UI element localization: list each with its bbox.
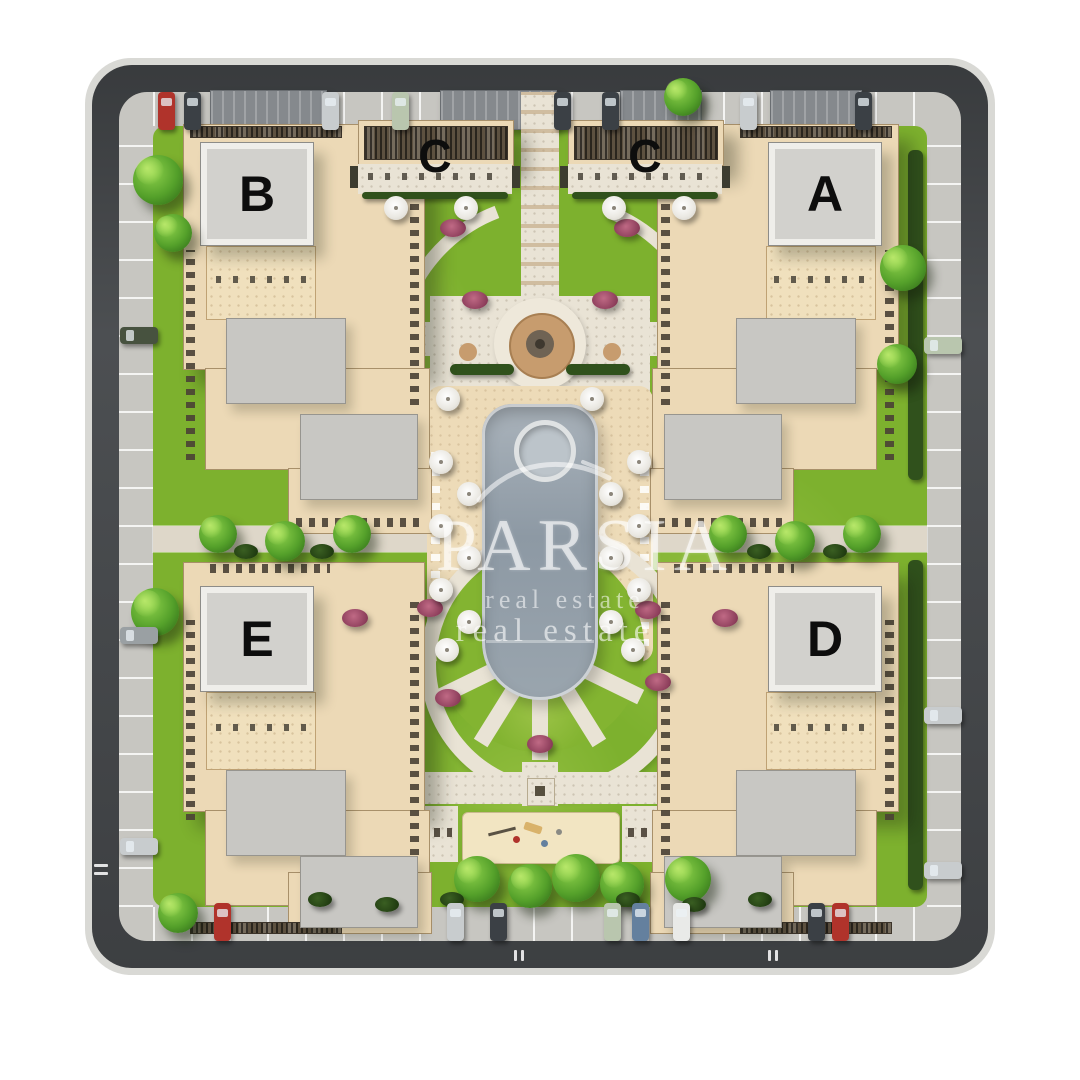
car-icon (447, 903, 464, 941)
umbrella-icon (429, 578, 453, 602)
flower-bush-icon (342, 609, 368, 627)
flower-bush-icon (462, 291, 488, 309)
flower-bush-icon (614, 219, 640, 237)
road-marking (514, 950, 517, 961)
bush-icon (823, 544, 847, 559)
building-e-terrace (206, 692, 316, 770)
car-icon (120, 327, 158, 344)
hedge-row (566, 364, 630, 375)
building-a-terrace-tables (774, 276, 864, 283)
car-icon (120, 627, 158, 644)
building-b-terrace-tables (216, 276, 306, 283)
umbrella-icon (457, 482, 481, 506)
building-e-balconies (186, 620, 195, 820)
car-icon (158, 92, 175, 130)
building-e-main-roof: E (200, 586, 314, 692)
building-d-main-roof: D (768, 586, 882, 692)
planter-box (350, 166, 358, 188)
car-icon (322, 92, 339, 130)
building-a-roof (664, 414, 782, 500)
car-icon (924, 337, 962, 354)
bush-icon (375, 897, 399, 912)
umbrella-icon (457, 546, 481, 570)
road-marking (94, 872, 108, 875)
site-plan-rendering: B A E (0, 0, 1080, 1080)
umbrella-icon (599, 482, 623, 506)
car-icon (832, 903, 849, 941)
umbrella-icon (627, 578, 651, 602)
umbrella-icon (435, 638, 459, 662)
playground (462, 812, 620, 864)
building-a-main-roof: A (768, 142, 882, 246)
building-a-terrace (766, 246, 876, 320)
car-icon (490, 903, 507, 941)
flower-bush-icon (527, 735, 553, 753)
umbrella-icon (429, 450, 453, 474)
bush-icon (308, 892, 332, 907)
building-d-balconies (674, 564, 794, 573)
playground-toy-gray (556, 829, 562, 835)
planter-circle-east (603, 343, 621, 361)
umbrella-icon (580, 387, 604, 411)
building-c-right-labelarea: C (568, 118, 722, 194)
building-b-terrace (206, 246, 316, 320)
road-marking (94, 864, 108, 867)
parking-stalls-left (119, 126, 153, 907)
tree-icon (333, 515, 371, 553)
tree-icon (552, 854, 600, 902)
building-b-main-roof: B (200, 142, 314, 246)
umbrella-icon (599, 610, 623, 634)
umbrella-icon (436, 387, 460, 411)
building-e-balconies (410, 600, 419, 855)
umbrella-icon (429, 514, 453, 538)
car-icon (602, 92, 619, 130)
bush-icon (748, 892, 772, 907)
road-marking (768, 950, 771, 961)
tree-icon (880, 245, 926, 291)
building-d-roof (736, 770, 856, 856)
tree-icon (133, 155, 183, 205)
tree-icon (665, 856, 711, 902)
car-icon (214, 903, 231, 941)
planter-circle-west (459, 343, 477, 361)
road-marking (521, 950, 524, 961)
car-icon (392, 92, 409, 130)
hedge-row (908, 150, 923, 480)
building-b-pergola (190, 126, 342, 138)
planter-box (722, 166, 730, 188)
spa-circle (514, 420, 576, 482)
fountain-jet (535, 339, 545, 349)
building-e-terrace-tables (216, 724, 306, 731)
car-icon (924, 707, 962, 724)
tree-icon (199, 515, 237, 553)
umbrella-icon (621, 638, 645, 662)
car-icon (120, 838, 158, 855)
flower-bush-icon (440, 219, 466, 237)
car-icon (554, 92, 571, 130)
umbrella-icon (602, 196, 626, 220)
flower-bush-icon (435, 689, 461, 707)
building-d-balconies (661, 600, 670, 855)
umbrella-icon (384, 196, 408, 220)
building-c-left-label[interactable]: C (418, 133, 451, 179)
umbrella-icon (454, 196, 478, 220)
building-a-label[interactable]: A (807, 169, 843, 219)
tree-icon (508, 864, 551, 907)
bush-icon (747, 544, 771, 559)
tree-icon (843, 515, 881, 553)
flower-bush-icon (645, 673, 671, 691)
building-d-balconies (885, 620, 894, 820)
building-c-left-labelarea: C (358, 118, 512, 194)
umbrella-icon (457, 610, 481, 634)
building-c-right-label[interactable]: C (628, 133, 661, 179)
building-a-roof (736, 318, 856, 404)
umbrella-icon (599, 546, 623, 570)
pool-lane-line (486, 640, 594, 643)
feature-square-center (535, 786, 545, 796)
flower-bush-icon (592, 291, 618, 309)
building-b-roof (226, 318, 346, 404)
car-icon (673, 903, 690, 941)
planter-box (512, 166, 520, 188)
umbrella-icon (627, 514, 651, 538)
umbrella-icon (627, 450, 651, 474)
building-b-label[interactable]: B (239, 169, 275, 219)
car-icon (808, 903, 825, 941)
tree-icon (154, 214, 192, 252)
car-icon (924, 862, 962, 879)
car-icon (740, 92, 757, 130)
bush-icon (310, 544, 334, 559)
bush-icon (234, 544, 258, 559)
flower-bush-icon (635, 601, 661, 619)
building-e-roof (226, 770, 346, 856)
building-d-label[interactable]: D (807, 614, 843, 664)
car-icon (855, 92, 872, 130)
umbrella-icon (672, 196, 696, 220)
road-marking (775, 950, 778, 961)
planter-box (560, 166, 568, 188)
playground-toy-red (513, 836, 520, 843)
building-e-label[interactable]: E (240, 614, 273, 664)
tree-icon (664, 78, 702, 116)
building-b-roof (300, 414, 418, 500)
building-b-balconies (186, 250, 195, 460)
parking-stalls-right (927, 126, 961, 907)
car-icon (184, 92, 201, 130)
building-d-terrace-tables (774, 724, 864, 731)
hedge-row (450, 364, 514, 375)
building-d-terrace (766, 692, 876, 770)
tree-icon (709, 515, 747, 553)
car-icon (604, 903, 621, 941)
hedge-row (908, 560, 923, 890)
car-icon (632, 903, 649, 941)
flower-bush-icon (712, 609, 738, 627)
building-e-balconies (210, 564, 330, 573)
playground-toy-blue (541, 840, 548, 847)
